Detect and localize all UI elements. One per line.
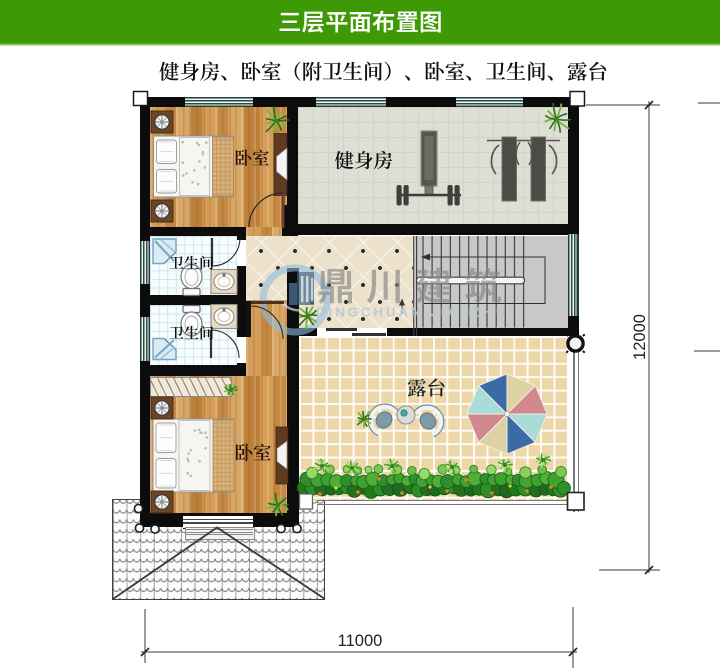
svg-text:11000: 11000	[338, 632, 383, 650]
svg-text:DINGCHUAN JIANZHU: DINGCHUAN JIANZHU	[316, 305, 508, 320]
svg-text:12000: 12000	[631, 314, 649, 360]
